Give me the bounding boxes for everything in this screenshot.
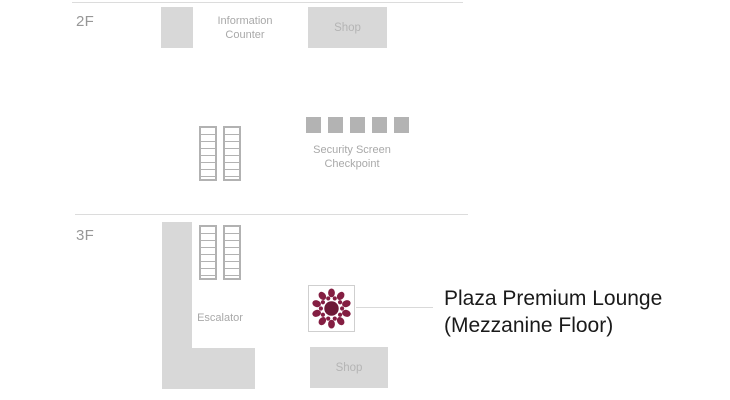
lounge-callout: Plaza Premium Lounge (Mezzanine Floor) — [444, 285, 662, 339]
security-checkpoint-label: Security Screen Checkpoint — [297, 144, 407, 171]
plaza-premium-lounge-logo — [308, 285, 355, 332]
escalator-step-band — [199, 126, 217, 181]
information-counter-label: Information Counter — [197, 15, 293, 42]
security-checkpoint-icon — [306, 117, 409, 133]
lounge-name-line2: (Mezzanine Floor) — [444, 312, 662, 339]
lounge-flower-icon — [311, 288, 352, 329]
lounge-connector-line — [356, 307, 433, 308]
shop-3f-box: Shop — [310, 347, 388, 388]
escalator-step-band — [223, 126, 241, 181]
floor-3f-label: 3F — [76, 227, 94, 244]
walkway-vertical-block-3f — [162, 222, 192, 389]
shop-3f-label: Shop — [336, 362, 363, 374]
shop-2f-label: Shop — [334, 22, 361, 34]
escalator-2f-icon — [199, 126, 241, 181]
escalator-label: Escalator — [190, 312, 250, 326]
floor-map: 2F Information Counter Shop Security Scr… — [0, 0, 730, 400]
floor-2f-divider — [72, 2, 463, 3]
corridor-block-2f — [161, 7, 193, 48]
shop-2f-box: Shop — [308, 7, 387, 48]
walkway-horizontal-block-3f — [192, 348, 255, 389]
escalator-step-band — [223, 225, 241, 280]
escalator-step-band — [199, 225, 217, 280]
lounge-name-line1: Plaza Premium Lounge — [444, 285, 662, 312]
floor-2f-label: 2F — [76, 13, 94, 30]
floor-3f-divider — [75, 214, 468, 215]
escalator-3f-icon — [199, 225, 241, 280]
